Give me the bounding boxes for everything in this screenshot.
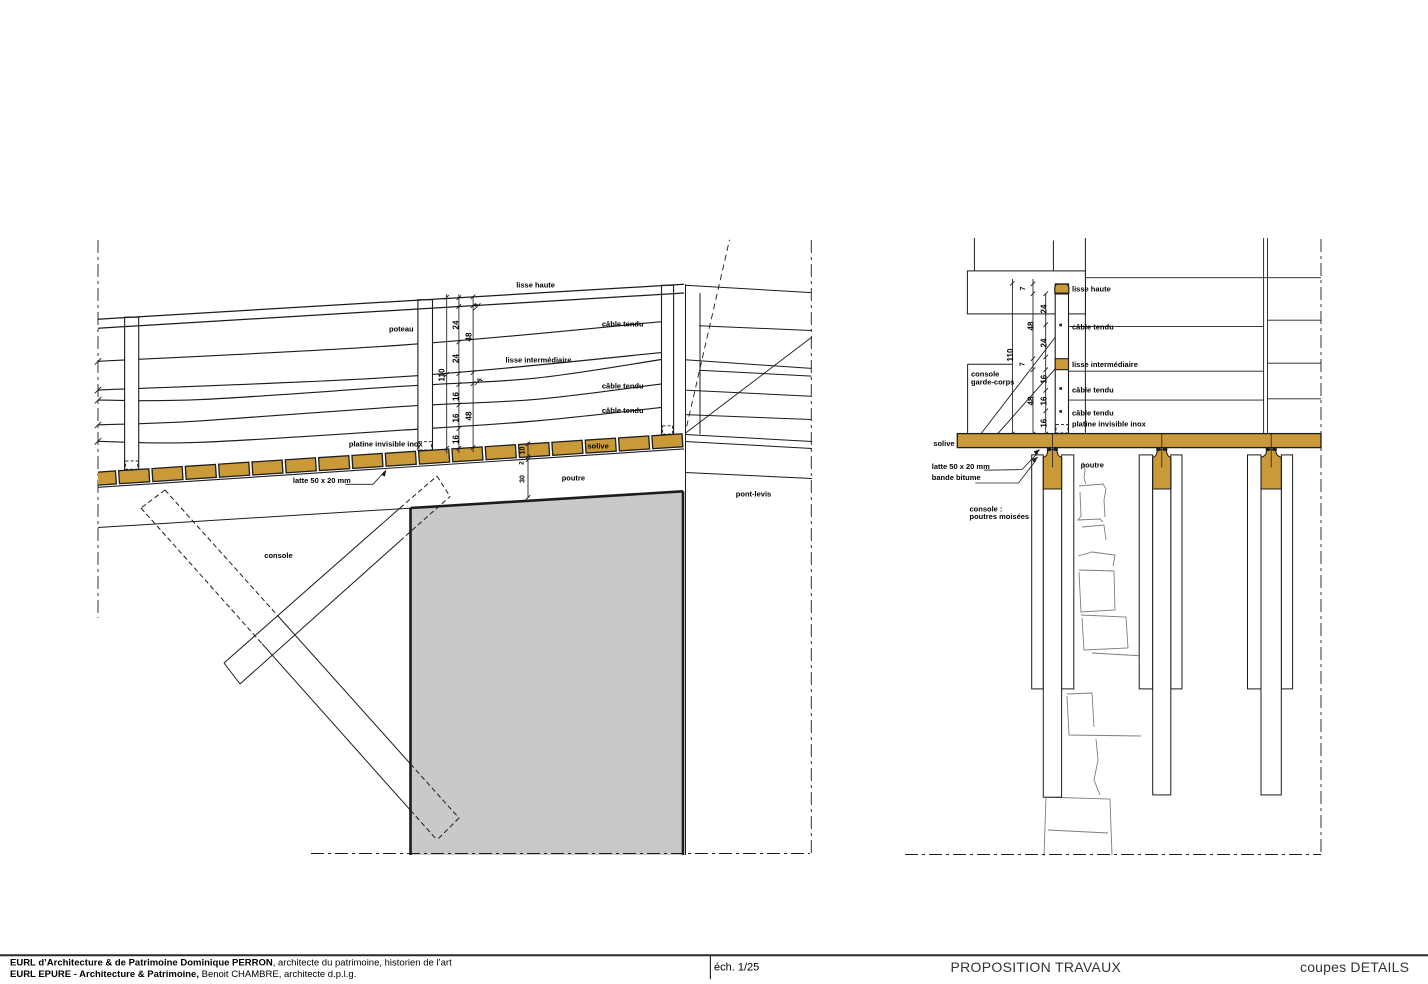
svg-text:EURL d’Architecture & de Patri: EURL d’Architecture & de Patrimoine Domi… — [10, 957, 452, 968]
svg-text:48: 48 — [1027, 396, 1036, 405]
svg-text:48: 48 — [1027, 321, 1036, 330]
svg-text:latte 50 x 20 mm: latte 50 x 20 mm — [932, 462, 990, 471]
svg-text:16: 16 — [1039, 374, 1048, 383]
svg-text:solive: solive — [588, 442, 609, 451]
svg-text:câble tendu: câble tendu — [1072, 386, 1114, 395]
svg-text:30: 30 — [520, 475, 527, 483]
svg-text:48: 48 — [464, 332, 473, 341]
svg-text:bande bitume: bande bitume — [932, 473, 981, 482]
svg-text:16: 16 — [452, 435, 461, 444]
svg-text:24: 24 — [1039, 304, 1048, 313]
svg-text:pont-levis: pont-levis — [736, 490, 771, 499]
svg-text:24: 24 — [1039, 338, 1048, 347]
svg-text:poteau: poteau — [389, 325, 414, 334]
svg-text:platine invisible inox: platine invisible inox — [349, 439, 424, 448]
svg-text:7: 7 — [1020, 362, 1027, 366]
svg-text:16: 16 — [1039, 418, 1048, 427]
svg-text:7: 7 — [1020, 286, 1027, 290]
svg-text:110: 110 — [437, 368, 446, 381]
svg-text:24: 24 — [452, 354, 461, 363]
svg-text:latte 50 x 20 mm: latte 50 x 20 mm — [293, 476, 351, 485]
svg-text:EURL EPURE - Architecture & Pa: EURL EPURE - Architecture & Patrimoine, … — [10, 969, 356, 980]
svg-text:48: 48 — [464, 411, 473, 420]
svg-text:câble tendu: câble tendu — [602, 381, 644, 390]
svg-text:câble tendu: câble tendu — [1072, 323, 1114, 332]
svg-text:lisse haute: lisse haute — [1072, 285, 1111, 294]
svg-text:lisse intermédiaire: lisse intermédiaire — [506, 356, 572, 365]
svg-text:16: 16 — [1039, 396, 1048, 405]
svg-text:2: 2 — [519, 461, 526, 465]
svg-text:câble tendu: câble tendu — [1072, 409, 1114, 418]
svg-text:poutres moisées: poutres moisées — [970, 512, 1030, 521]
svg-text:poutre: poutre — [562, 473, 585, 482]
svg-text:solive: solive — [933, 439, 954, 448]
svg-text:110: 110 — [1006, 348, 1015, 361]
svg-text:24: 24 — [452, 320, 461, 329]
svg-text:poutre: poutre — [1081, 461, 1104, 470]
svg-text:garde-corps: garde-corps — [971, 377, 1014, 386]
svg-text:coupes DETAILS: coupes DETAILS — [1300, 959, 1409, 975]
svg-text:éch. 1/25: éch. 1/25 — [714, 962, 759, 974]
svg-text:platine invisible inox: platine invisible inox — [1072, 420, 1147, 429]
svg-text:console: console — [264, 551, 292, 560]
svg-text:16: 16 — [452, 413, 461, 422]
svg-text:10: 10 — [520, 447, 527, 455]
svg-text:câble tendu: câble tendu — [602, 406, 644, 415]
svg-text:lisse haute: lisse haute — [516, 281, 555, 290]
svg-text:16: 16 — [452, 392, 461, 401]
svg-text:PROPOSITION TRAVAUX: PROPOSITION TRAVAUX — [951, 959, 1122, 975]
svg-text:lisse intermédiaire: lisse intermédiaire — [1072, 360, 1138, 369]
svg-text:câble tendu: câble tendu — [602, 320, 644, 329]
